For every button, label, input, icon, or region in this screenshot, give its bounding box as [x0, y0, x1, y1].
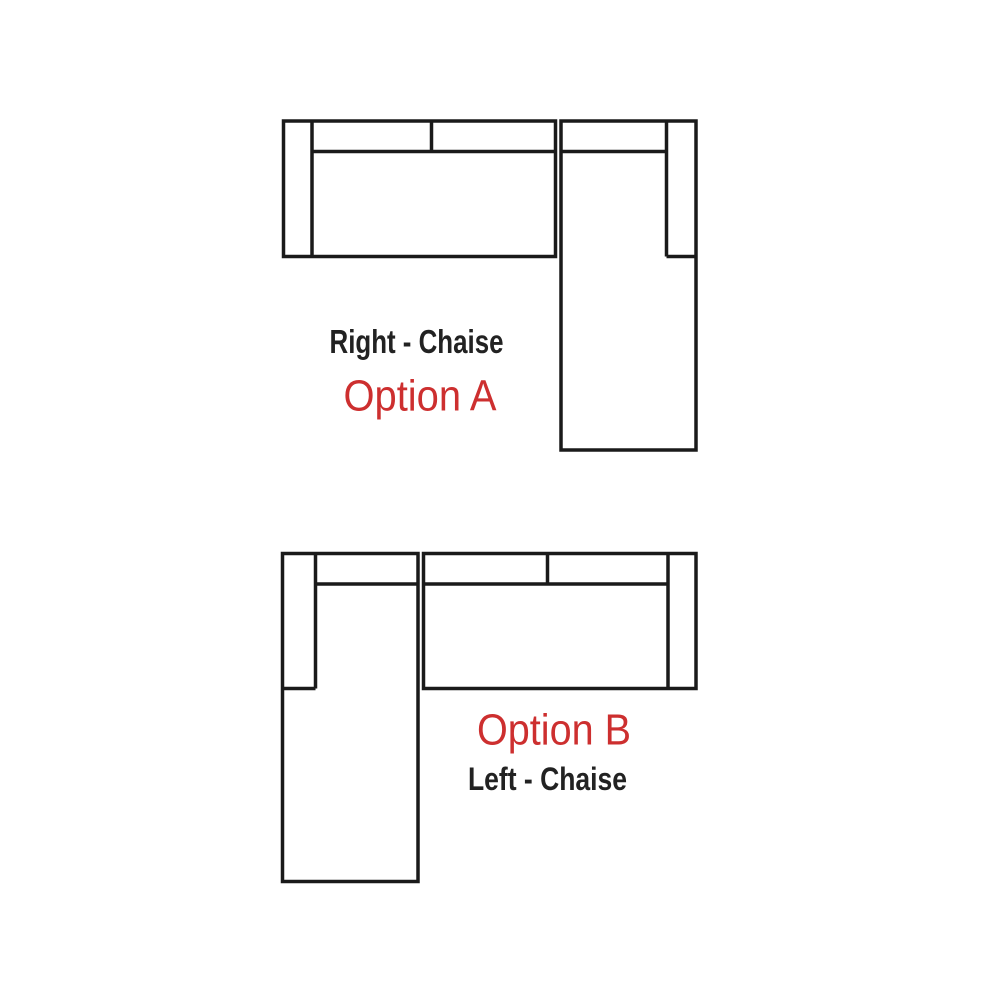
svg-text:Right - Chaise: Right - Chaise — [330, 323, 504, 360]
svg-text:Option A: Option A — [344, 372, 498, 421]
svg-text:Option B: Option B — [477, 706, 631, 755]
svg-text:Left - Chaise: Left - Chaise — [468, 761, 627, 797]
